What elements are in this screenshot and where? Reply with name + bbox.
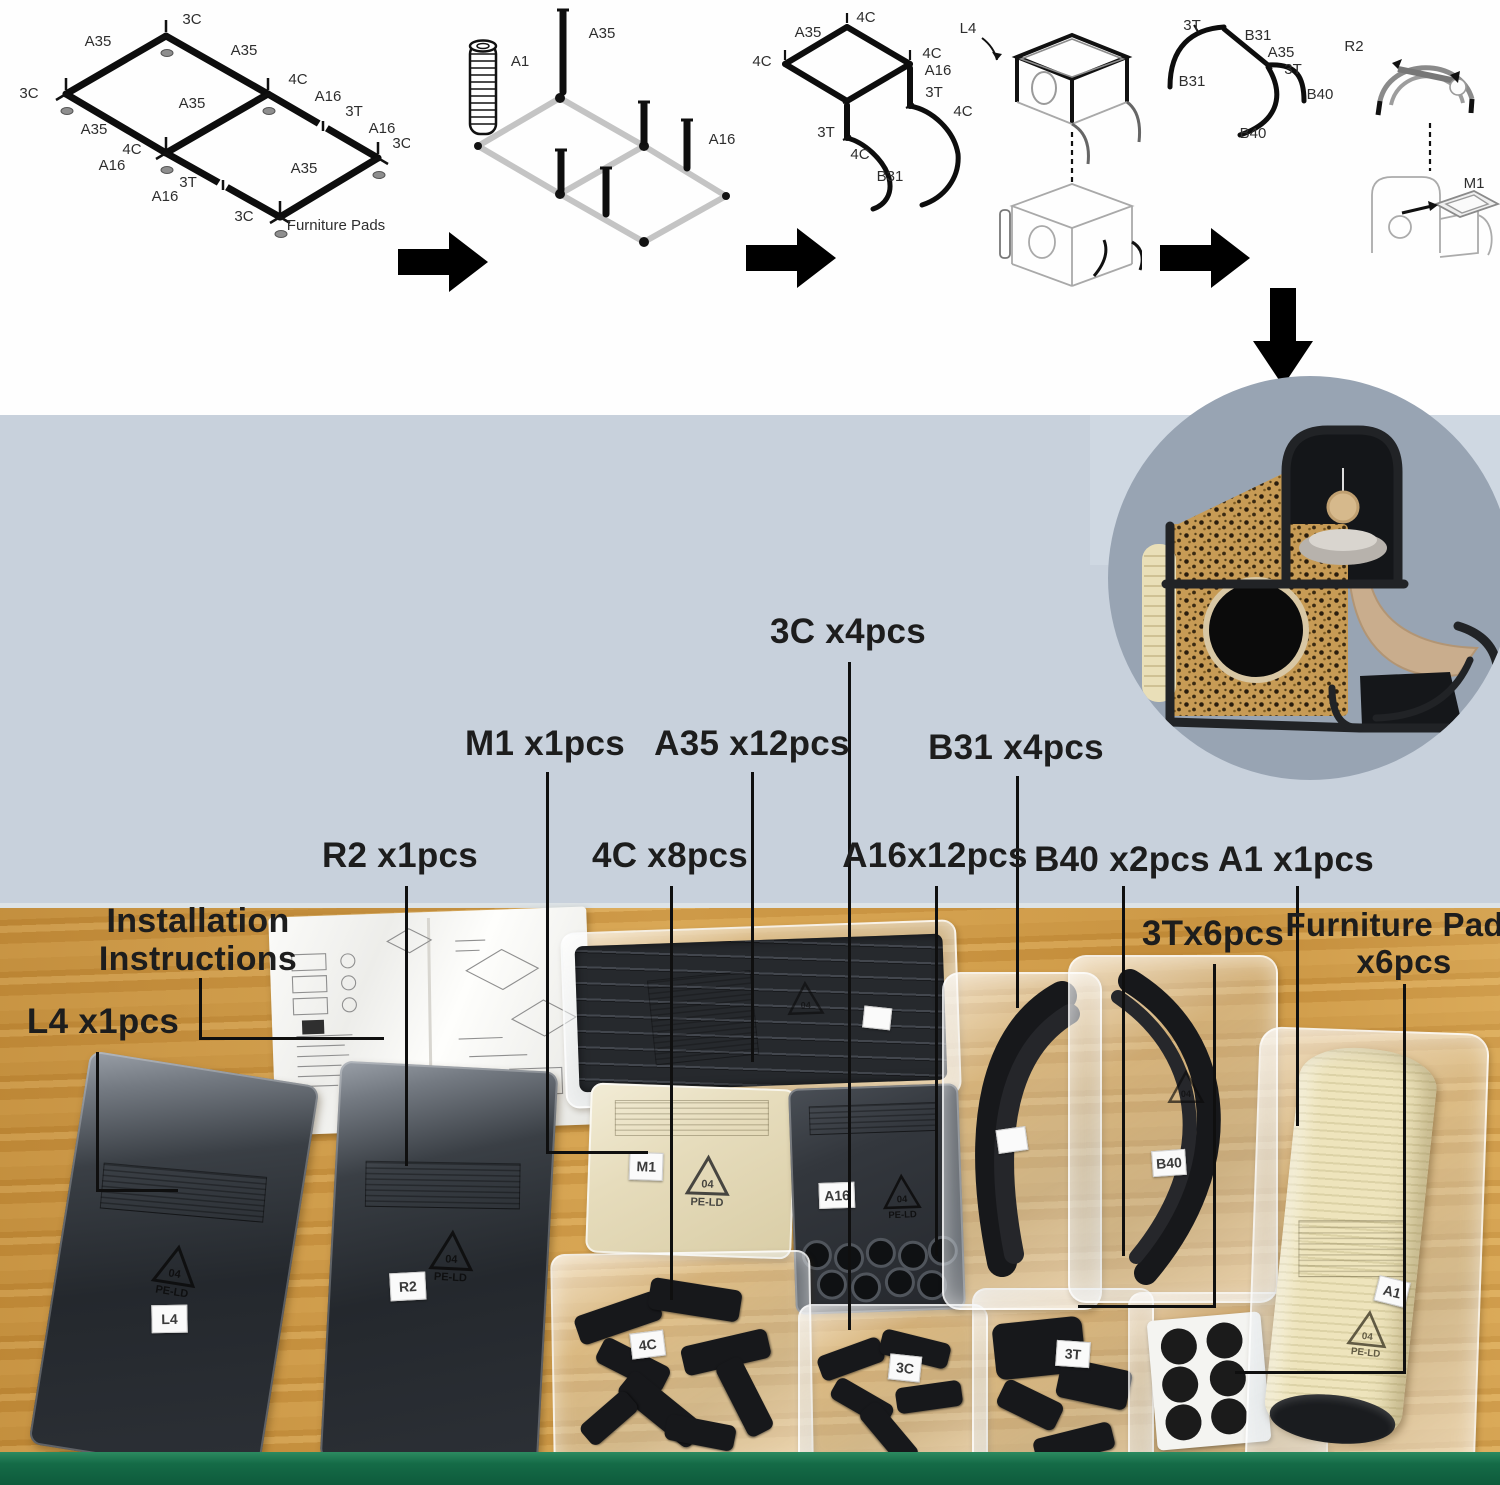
label-3t: 3Tx6pcs [1142,914,1284,954]
a35-sticker [862,1005,892,1030]
roof-assembly [1378,59,1472,115]
diagram-callout: A35 [795,24,822,41]
tube-end [865,1237,896,1268]
furniture-pads-glyphs [61,50,385,238]
leader-pads [1403,984,1406,1374]
m1-warning-print [615,1100,769,1136]
house-arcs [1094,240,1142,276]
recycle-icon: 04 [783,977,827,1026]
diagram-callout: A35 [179,95,206,112]
diagram-callout: Furniture Pads [287,217,385,234]
4c-connectors-bag: 4C [550,1250,814,1473]
diagram-callout: L4 [960,20,977,37]
4c-sticker: 4C [629,1330,666,1360]
svg-text:PE-LD: PE-LD [889,1209,918,1221]
step2-uprights-diagram: A1A35A16 [430,0,760,252]
svg-text:04: 04 [1181,1089,1192,1099]
leader-instructions [199,978,202,1040]
furniture-pad [1210,1397,1249,1436]
diagram-callout: 4C [752,53,771,70]
b40-arch-tubes [1070,957,1276,1301]
diagram-callout: 4C [850,146,869,163]
svg-text:04: 04 [167,1267,182,1281]
leader-pads-h [1235,1371,1405,1374]
3c-sticker: 3C [888,1354,923,1383]
svg-text:PE-LD: PE-LD [1350,1346,1381,1360]
label-a1: A1 x1pcs [1218,840,1374,880]
diagram-callout: A16 [99,157,126,174]
diagram-callout: 3T [925,84,943,101]
label-a35: A35 x12pcs [654,724,850,764]
diagram-callout: A35 [291,160,318,177]
svg-text:PE-LD: PE-LD [434,1271,468,1285]
diagram-callout: B40 [1307,86,1334,103]
recycle-icon: 04 [1165,1067,1207,1115]
label-b40: B40 x2pcs [1034,840,1210,880]
diagram-callout: 4C [288,71,307,88]
label-4c: 4C x8pcs [592,836,748,876]
recycle-icon: 04 PE-LD [879,1170,925,1222]
svg-text:04: 04 [1361,1331,1374,1343]
r2-panel-bag: 04 PE-LD R2 [320,1061,559,1472]
joint-gaps [219,123,327,187]
finished-product-photo [1108,376,1500,780]
diagram-callout: B31 [1179,73,1206,90]
a16-warning-print [809,1102,938,1136]
tube-end [884,1267,915,1298]
label-furniture-pads: Furniture Padsx6pcs [1285,906,1500,981]
diagram-callout: 3C [19,85,38,102]
leader-3t-h [1078,1305,1216,1308]
leader-l4 [96,1052,99,1192]
leader-r2 [405,886,408,1166]
diagram-callout: A35 [231,42,258,59]
diagram-callout: 4C [122,141,141,158]
diagram-callout: A35 [85,33,112,50]
leader-3t [1213,964,1216,1308]
upper-assembly [982,35,1140,164]
b40-arches-bag: 04 B40 [1068,955,1278,1303]
recycle-icon: 04 PE-LD [1342,1305,1393,1362]
lower-house-wireframe [1000,184,1132,286]
diagram-callout: 4C [856,9,875,26]
m1-cushion-bag: M1 04 PE-LD [585,1082,797,1259]
a1-warning-print [1298,1220,1405,1277]
svg-text:PE-LD: PE-LD [690,1196,723,1209]
product-parts-infographic: 3CA35A353C4CA163TA163CA35A354CA163TA163C… [0,0,1500,1485]
diagram-callout: A16 [925,62,952,79]
diagram-callout: 3C [234,208,253,225]
3t-sticker: 3T [1055,1340,1091,1368]
diagram-callout: A1 [511,53,529,70]
leader-m1-h [546,1151,648,1154]
step-arrow-3 [1160,228,1250,288]
diagram-callout: A16 [369,120,396,137]
furniture-pad [1205,1321,1244,1360]
diagram-callout: B31 [1245,27,1272,44]
l4-warning-print [100,1163,268,1223]
b40-sticker: B40 [1152,1148,1188,1176]
recycle-icon: 04 PE-LD [681,1150,733,1210]
tube-end [851,1272,882,1303]
furniture-pad [1208,1359,1247,1398]
diagram-callout: B40 [1240,125,1267,142]
label-b31: B31 x4pcs [928,728,1104,768]
diagram-callout: B31 [877,168,904,185]
diagram-callout: 3T [817,124,835,141]
furniture-pad [1164,1403,1203,1442]
diagram-callout: A35 [81,121,108,138]
a16-tubes-bag: A16 04 PE-LD [788,1083,966,1315]
label-m1: M1 x1pcs [465,724,625,764]
diagram-callout: R2 [1344,38,1363,55]
r2-sticker: R2 [389,1271,426,1301]
leader-m1 [546,772,549,1154]
diagram-callout: 3T [1284,61,1302,78]
r2-warning-print [364,1161,519,1210]
leader-a35 [751,772,754,1062]
diagram-callout: 3C [392,135,410,152]
diagram-callout: 3T [1183,17,1201,34]
pole-caps [555,10,693,168]
svg-text:04: 04 [897,1194,909,1205]
step-arrow-down [1253,288,1313,386]
diagram-callout: 4C [922,45,941,62]
leader-l4-h [96,1189,178,1192]
label-r2: R2 x1pcs [322,836,478,876]
diagram-callout: A35 [1268,44,1295,61]
diagram-callout: A16 [315,88,342,105]
diagram-callout: 3C [182,11,201,28]
diagram-callout: 3T [345,103,363,120]
cat-house-illustration [1108,376,1500,780]
l4-sticker: L4 [151,1304,187,1333]
svg-text:04: 04 [445,1253,459,1266]
b31-sticker [996,1126,1029,1154]
svg-text:04: 04 [701,1178,715,1190]
3c-connectors-bag: 3C [798,1304,988,1472]
recycle-icon: 04 PE-LD [146,1238,204,1303]
diagram-callout: A16 [152,188,179,205]
svg-text:04: 04 [800,1000,811,1010]
diagram-callout: 3T [179,174,197,191]
m1-sticker: M1 [629,1152,664,1181]
m1-mat [1402,191,1498,217]
diagram-callout: A35 [589,25,616,42]
label-a16: A16x12pcs [842,836,1028,876]
diagram-callout: A16 [709,131,736,148]
label-instructions: InstallationInstructions [99,902,297,979]
tube-end [816,1269,847,1300]
spiral-post-a1 [470,41,496,135]
leader-b40 [1122,886,1125,1256]
step-arrow-1 [398,232,488,292]
step-arrow-2 [746,228,836,288]
furniture-pad [1159,1327,1198,1366]
furniture-pad [1161,1365,1200,1404]
label-3c: 3C x4pcs [770,612,926,652]
table-green-edge [0,1452,1500,1485]
diagram-callout: 4C [953,103,972,120]
recycle-icon: 04 PE-LD [425,1225,478,1286]
diagram-callout: M1 [1464,175,1485,192]
label-l4: L4 x1pcs [27,1002,179,1042]
leader-instructions-h [199,1037,384,1040]
a35-tubes-bag: 04 [560,919,962,1109]
leader-b31 [1016,776,1019,1008]
leader-4c [670,886,673,1300]
leader-a16 [935,886,938,1256]
a35-warning-print [647,970,759,1065]
step1-base-frame-diagram: 3CA35A353C4CA163TA163CA35A354CA163TA163C… [6,6,410,241]
